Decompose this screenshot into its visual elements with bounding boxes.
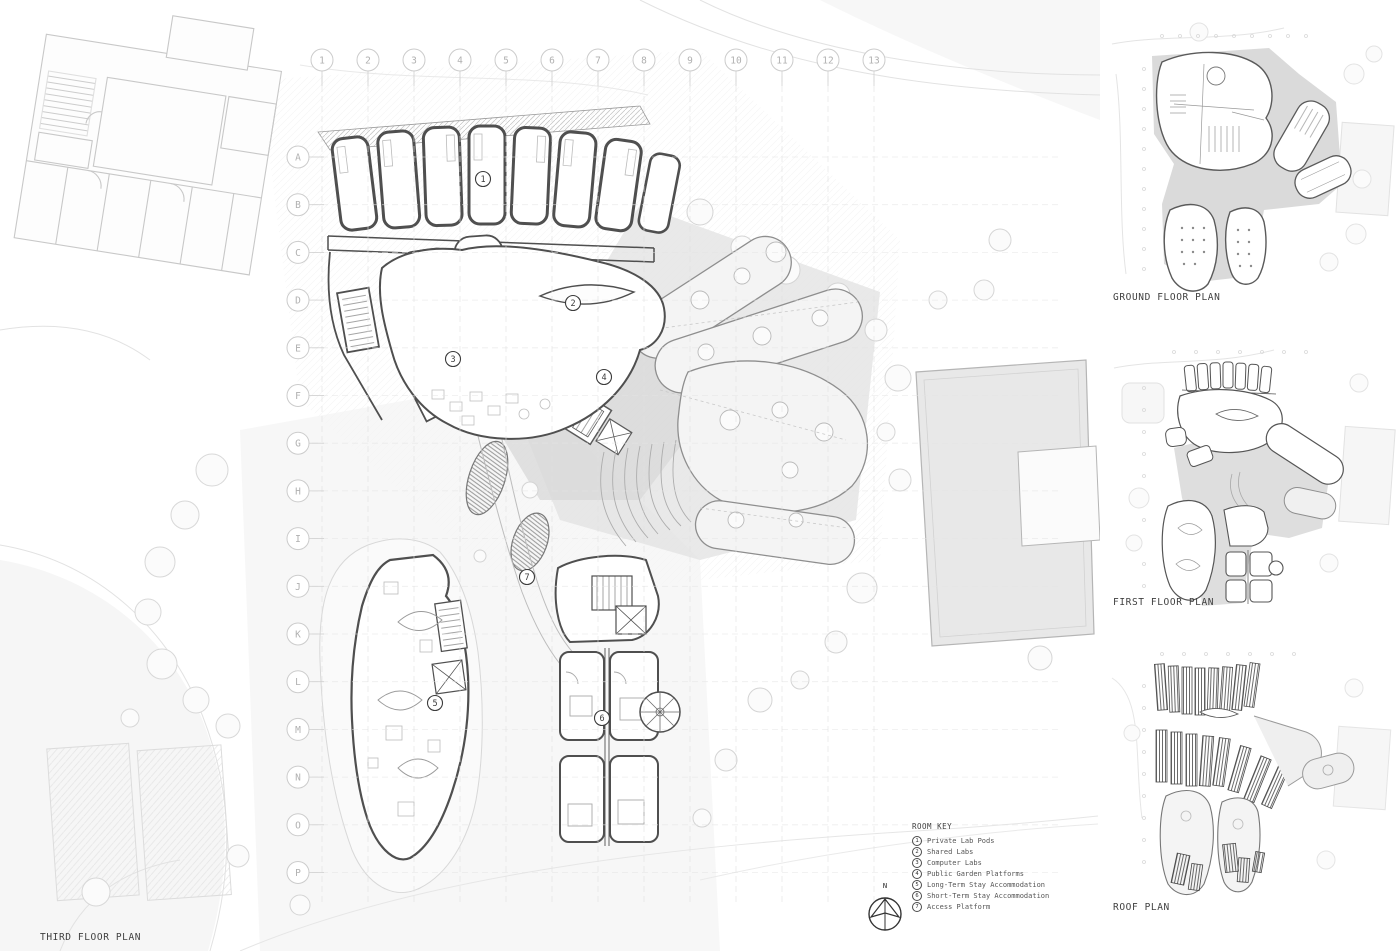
svg-text:5: 5 (432, 699, 437, 709)
roof-south-blobs (1160, 791, 1264, 895)
svg-text:10: 10 (730, 56, 742, 67)
room-key-number: 7 (912, 902, 922, 912)
ground-floor-caption: GROUND FLOOR PLAN (1113, 292, 1220, 303)
context-building-east (877, 229, 1100, 670)
svg-text:E: E (295, 343, 301, 354)
room-key-item: 3 Computer Labs (912, 857, 1087, 868)
svg-text:H: H (295, 486, 301, 497)
svg-text:6: 6 (549, 56, 555, 67)
room-key-number: 2 (912, 847, 922, 857)
svg-text:D: D (295, 296, 301, 307)
room-key-item: 6 Short-Term Stay Accommodation (912, 890, 1087, 901)
svg-text:C: C (295, 248, 301, 259)
main-plan-caption: THIRD FLOOR PLAN (40, 932, 141, 943)
room-key-label: Shared Labs (927, 848, 973, 856)
svg-text:M: M (295, 725, 301, 736)
north-label: N (862, 882, 908, 890)
svg-text:3: 3 (450, 355, 455, 365)
svg-text:8: 8 (641, 56, 647, 67)
svg-text:2: 2 (365, 56, 371, 67)
svg-text:I: I (295, 534, 301, 545)
svg-text:11: 11 (776, 56, 788, 67)
svg-text:12: 12 (822, 56, 833, 67)
svg-text:13: 13 (868, 56, 879, 67)
room-key-number: 5 (912, 880, 922, 890)
north-arrow-icon (862, 890, 908, 934)
room-key-item: 7 Access Platform (912, 901, 1087, 912)
svg-text:G: G (295, 439, 301, 450)
svg-text:J: J (295, 582, 301, 593)
svg-text:4: 4 (601, 373, 606, 383)
room-key-label: Computer Labs (927, 859, 982, 867)
room-key-item: 1 Private Lab Pods (912, 835, 1087, 846)
svg-text:7: 7 (524, 573, 529, 583)
svg-text:O: O (295, 820, 301, 831)
svg-text:B: B (295, 200, 301, 211)
room-key-number: 1 (912, 836, 922, 846)
room-key-number: 4 (912, 869, 922, 879)
ground-floor-plan-drawing (1104, 14, 1396, 292)
room-key-label: Public Garden Platforms (927, 870, 1024, 878)
svg-text:7: 7 (595, 56, 601, 67)
svg-text:3: 3 (411, 56, 417, 67)
room-key-label: Private Lab Pods (927, 837, 994, 845)
room-key-item: 2 Shared Labs (912, 846, 1087, 857)
svg-text:5: 5 (503, 56, 509, 67)
svg-text:1: 1 (480, 175, 485, 185)
svg-text:4: 4 (457, 56, 463, 67)
svg-text:A: A (295, 153, 301, 164)
svg-text:L: L (295, 677, 301, 688)
svg-text:6: 6 (599, 714, 604, 724)
roof-plan-caption: ROOF PLAN (1113, 902, 1170, 913)
room-key-title: ROOM KEY (912, 822, 1087, 831)
room-key-label: Access Platform (927, 903, 990, 911)
svg-text:F: F (295, 391, 301, 402)
svg-text:2: 2 (570, 299, 575, 309)
first-lab-pods (1184, 362, 1272, 393)
drawing-sheet: 12345678910111213 ABCDEFGHIJKLMNOP 12345… (0, 0, 1400, 951)
room-key-label: Short-Term Stay Accommodation (927, 892, 1049, 900)
room-key-legend: ROOM KEY 1 Private Lab Pods 2 Shared Lab… (912, 822, 1087, 912)
third-floor-plan-drawing: 12345678910111213 ABCDEFGHIJKLMNOP 12345… (0, 0, 1100, 951)
roof-plan-drawing (1104, 638, 1396, 900)
spiral-stair (640, 692, 680, 732)
first-floor-plan-drawing (1104, 328, 1396, 606)
room-key-item: 4 Public Garden Platforms (912, 868, 1087, 879)
room-key-label: Long-Term Stay Accommodation (927, 881, 1045, 889)
room-key-number: 3 (912, 858, 922, 868)
room-key-item: 5 Long-Term Stay Accommodation (912, 879, 1087, 890)
first-floor-caption: FIRST FLOOR PLAN (1113, 597, 1214, 608)
svg-text:N: N (295, 773, 301, 784)
svg-text:1: 1 (319, 56, 325, 67)
north-arrow: N (862, 882, 908, 938)
context-building-northwest (14, 0, 287, 275)
svg-text:9: 9 (687, 56, 693, 67)
ground-main-building (1157, 52, 1273, 170)
svg-text:K: K (295, 630, 301, 641)
svg-text:P: P (295, 868, 301, 879)
room-key-number: 6 (912, 891, 922, 901)
